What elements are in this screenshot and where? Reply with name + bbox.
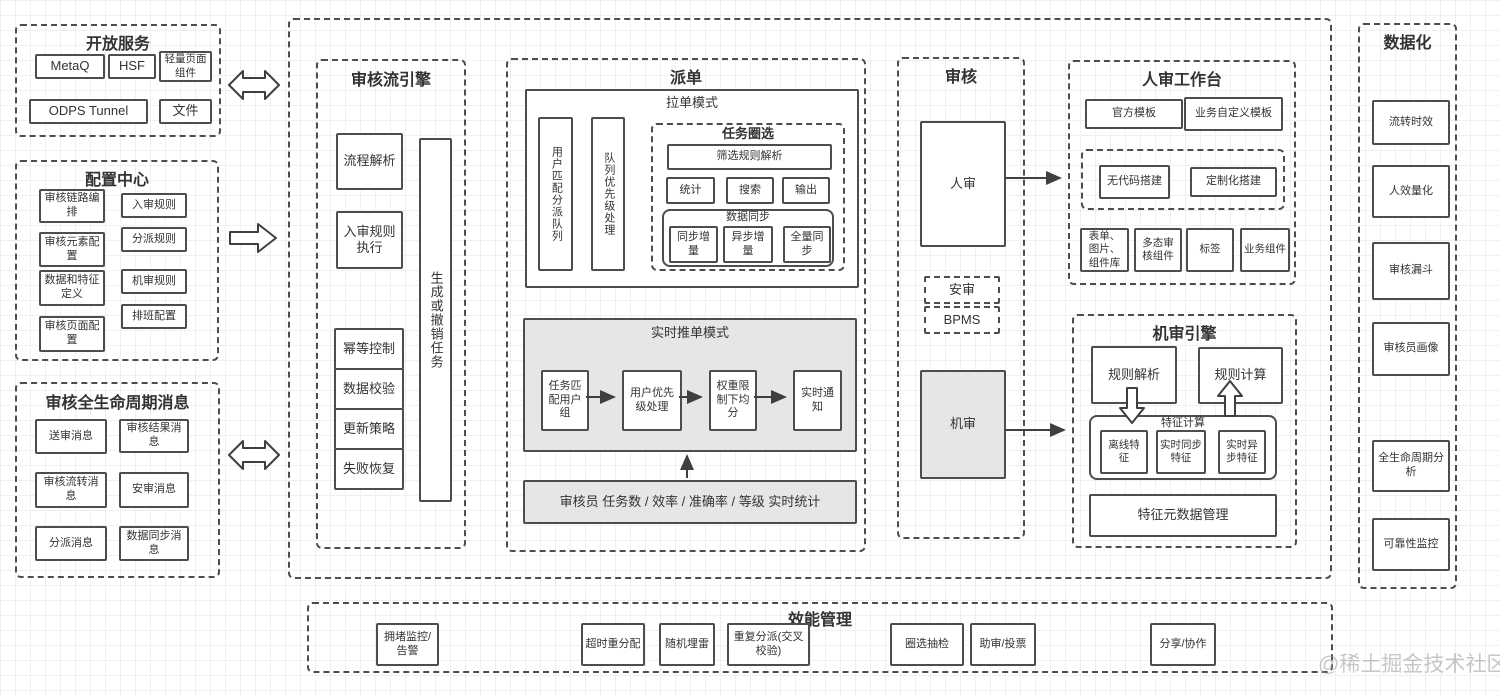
node-queue-priority-processing: 队列优先级处理 [591,117,625,271]
push-mode-title: 实时推单模式 [525,325,855,341]
dataization-panel: 数据化 流转时效 人效量化 审核漏斗 审核员画像 全生命周期分析 可靠性监控 [1358,23,1457,589]
node-security-audit: 安审 [924,276,1000,304]
workbench-title: 人审工作台 [1070,66,1294,90]
dispatch-title: 派单 [508,64,864,88]
node-weight-limit-split: 权重限制下均分 [709,370,757,431]
node-official-template: 官方模板 [1085,99,1183,129]
node-duplicate-dispatch-crosscheck: 重复分派(交叉校验) [727,623,810,666]
node-intake-rule-exec: 入审规则执行 [336,211,403,269]
node-sync-incremental: 同步增量 [669,226,718,263]
audit-title: 审核 [899,63,1023,87]
node-timeout-reassign: 超时重分配 [581,623,645,666]
node-light-page-component: 轻量页面组件 [159,51,212,82]
node-idempotent-control: 幂等控制 [334,328,404,370]
watermark-text: @稀土掘金技术社区 [1318,648,1500,678]
node-machine-audit: 机审 [920,370,1006,479]
node-security-audit-message: 安审消息 [119,472,189,508]
node-rule-calc: 规则计算 [1198,347,1283,404]
node-audit-result-message: 审核结果消息 [119,419,189,453]
efficiency-panel: 效能管理 拥堵监控/告警 超时重分配 随机埋雷 重复分派(交叉校验) 圈选抽检 … [307,602,1333,673]
dispatch-panel: 派单 拉单模式 用户匹配分派队列 队列优先级处理 任务圈选 筛选规则解析 统计 … [506,58,866,552]
node-realtime-sync-feature: 实时同步特征 [1156,430,1206,474]
data-sync-panel: 数据同步 同步增量 异步增量 全量同步 [662,209,834,267]
node-audit-page-config: 审核页面配置 [39,316,105,352]
node-custom-template: 业务自定义模板 [1184,97,1283,131]
node-polymorphic-audit-component: 多态审核组件 [1134,228,1182,272]
audit-panel: 审核 人审 安审 BPMS 机审 [897,57,1025,539]
node-shift-config: 排班配置 [121,304,187,329]
lifecycle-messages-title: 审核全生命周期消息 [17,389,218,413]
node-offline-feature: 离线特征 [1100,430,1148,474]
node-user-priority-processing: 用户优先级处理 [622,370,682,431]
node-audit-element-config: 审核元素配置 [39,232,105,267]
node-share-collaborate: 分享/协作 [1150,623,1216,666]
node-congestion-monitor-alert: 拥堵监控/告警 [376,623,439,666]
node-tag: 标签 [1186,228,1234,272]
node-feature-metadata-mgmt: 特征元数据管理 [1089,494,1277,537]
feature-calc-panel: 特征计算 离线特征 实时同步特征 实时异步特征 [1089,415,1277,480]
node-intake-rules: 入审规则 [121,193,187,218]
node-statistics: 统计 [666,177,715,204]
task-select-panel: 任务圈选 筛选规则解析 统计 搜索 输出 数据同步 同步增量 异步增量 全量同步 [651,123,845,271]
node-hsf: HSF [108,54,156,79]
workbench-panel: 人审工作台 官方模板 业务自定义模板 无代码搭建 定制化搭建 表单、图片、组件库… [1068,60,1296,285]
open-services-panel: 开放服务 MetaQ HSF 轻量页面组件 ODPS Tunnel 文件 [15,24,221,137]
config-center-title: 配置中心 [17,166,217,190]
node-machine-audit-rules: 机审规则 [121,269,187,294]
node-process-parse: 流程解析 [336,133,403,190]
feature-calc-title: 特征计算 [1091,417,1275,431]
node-async-incremental: 异步增量 [723,226,773,263]
node-selection-sampling: 圈选抽检 [890,623,964,666]
node-business-component: 业务组件 [1240,228,1290,272]
node-rule-parse: 规则解析 [1091,346,1177,404]
node-random-trap: 随机埋雷 [659,623,715,666]
node-realtime-async-feature: 实时异步特征 [1218,430,1266,474]
build-panel: 无代码搭建 定制化搭建 [1081,149,1285,210]
node-search: 搜索 [726,177,774,204]
dataization-title: 数据化 [1360,29,1455,53]
node-task-match-user-group: 任务匹配用户组 [541,370,589,431]
lifecycle-messages-panel: 审核全生命周期消息 送审消息 审核结果消息 审核流转消息 安审消息 分派消息 数… [15,382,220,578]
node-update-strategy: 更新策略 [334,408,404,450]
node-customized-build: 定制化搭建 [1190,167,1277,197]
node-dispatch-rules: 分派规则 [121,227,187,252]
node-assist-audit-vote: 助审/投票 [970,623,1036,666]
node-file: 文件 [159,99,212,124]
node-output: 输出 [782,177,830,204]
node-full-sync: 全量同步 [783,226,831,263]
node-data-validation: 数据校验 [334,368,404,410]
node-no-code-build: 无代码搭建 [1099,165,1170,199]
node-filter-rule-parse: 筛选规则解析 [667,144,832,170]
flow-engine-title: 审核流引擎 [318,66,464,90]
pull-mode-panel: 拉单模式 用户匹配分派队列 队列优先级处理 任务圈选 筛选规则解析 统计 搜索 … [525,89,859,288]
node-metaq: MetaQ [35,54,105,79]
node-flow-timeliness: 流转时效 [1372,100,1450,145]
bidirectional-arrow-icon [229,71,279,99]
architecture-diagram: 开放服务 MetaQ HSF 轻量页面组件 ODPS Tunnel 文件 配置中… [0,0,1500,696]
node-form-image-component-lib: 表单、图片、组件库 [1080,228,1129,272]
flow-engine-panel: 审核流引擎 流程解析 入审规则执行 幂等控制 数据校验 更新策略 失败恢复 生成… [316,59,466,549]
machine-engine-title: 机审引擎 [1074,320,1295,344]
reviewer-stats-bar: 审核员 任务数 / 效率 / 准确率 / 等级 实时统计 [523,480,857,524]
node-data-sync-message: 数据同步消息 [119,526,189,561]
node-data-feature-definition: 数据和特征定义 [39,270,105,306]
node-reviewer-profile: 审核员画像 [1372,322,1450,376]
config-center-panel: 配置中心 审核链路编排 审核元素配置 数据和特征定义 审核页面配置 入审规则 分… [15,160,219,361]
node-audit-funnel: 审核漏斗 [1372,242,1450,300]
node-odps-tunnel: ODPS Tunnel [29,99,148,124]
node-full-lifecycle-analysis: 全生命周期分析 [1372,440,1450,492]
node-submit-message: 送审消息 [35,419,107,454]
task-select-title: 任务圈选 [653,126,843,142]
node-user-match-dispatch-queue: 用户匹配分派队列 [538,117,573,271]
node-audit-flow-message: 审核流转消息 [35,472,107,508]
data-sync-title: 数据同步 [664,211,832,225]
node-efficiency-quantification: 人效量化 [1372,165,1450,218]
node-failure-recovery: 失败恢复 [334,448,404,490]
node-generate-or-cancel-task: 生成或撤销任务 [419,138,452,502]
pull-mode-title: 拉单模式 [527,95,857,111]
node-human-audit: 人审 [920,121,1006,247]
bidirectional-arrow-icon [229,441,279,469]
node-reliability-monitoring: 可靠性监控 [1372,518,1450,571]
node-bpms: BPMS [924,306,1000,334]
node-audit-link-orchestration: 审核链路编排 [39,189,105,223]
node-realtime-notify: 实时通知 [793,370,842,431]
machine-engine-panel: 机审引擎 规则解析 规则计算 特征计算 离线特征 实时同步特征 实时异步特征 特… [1072,314,1297,548]
right-arrow-icon [230,224,276,252]
node-dispatch-message: 分派消息 [35,526,107,561]
push-mode-panel: 实时推单模式 任务匹配用户组 用户优先级处理 权重限制下均分 实时通知 [523,318,857,452]
